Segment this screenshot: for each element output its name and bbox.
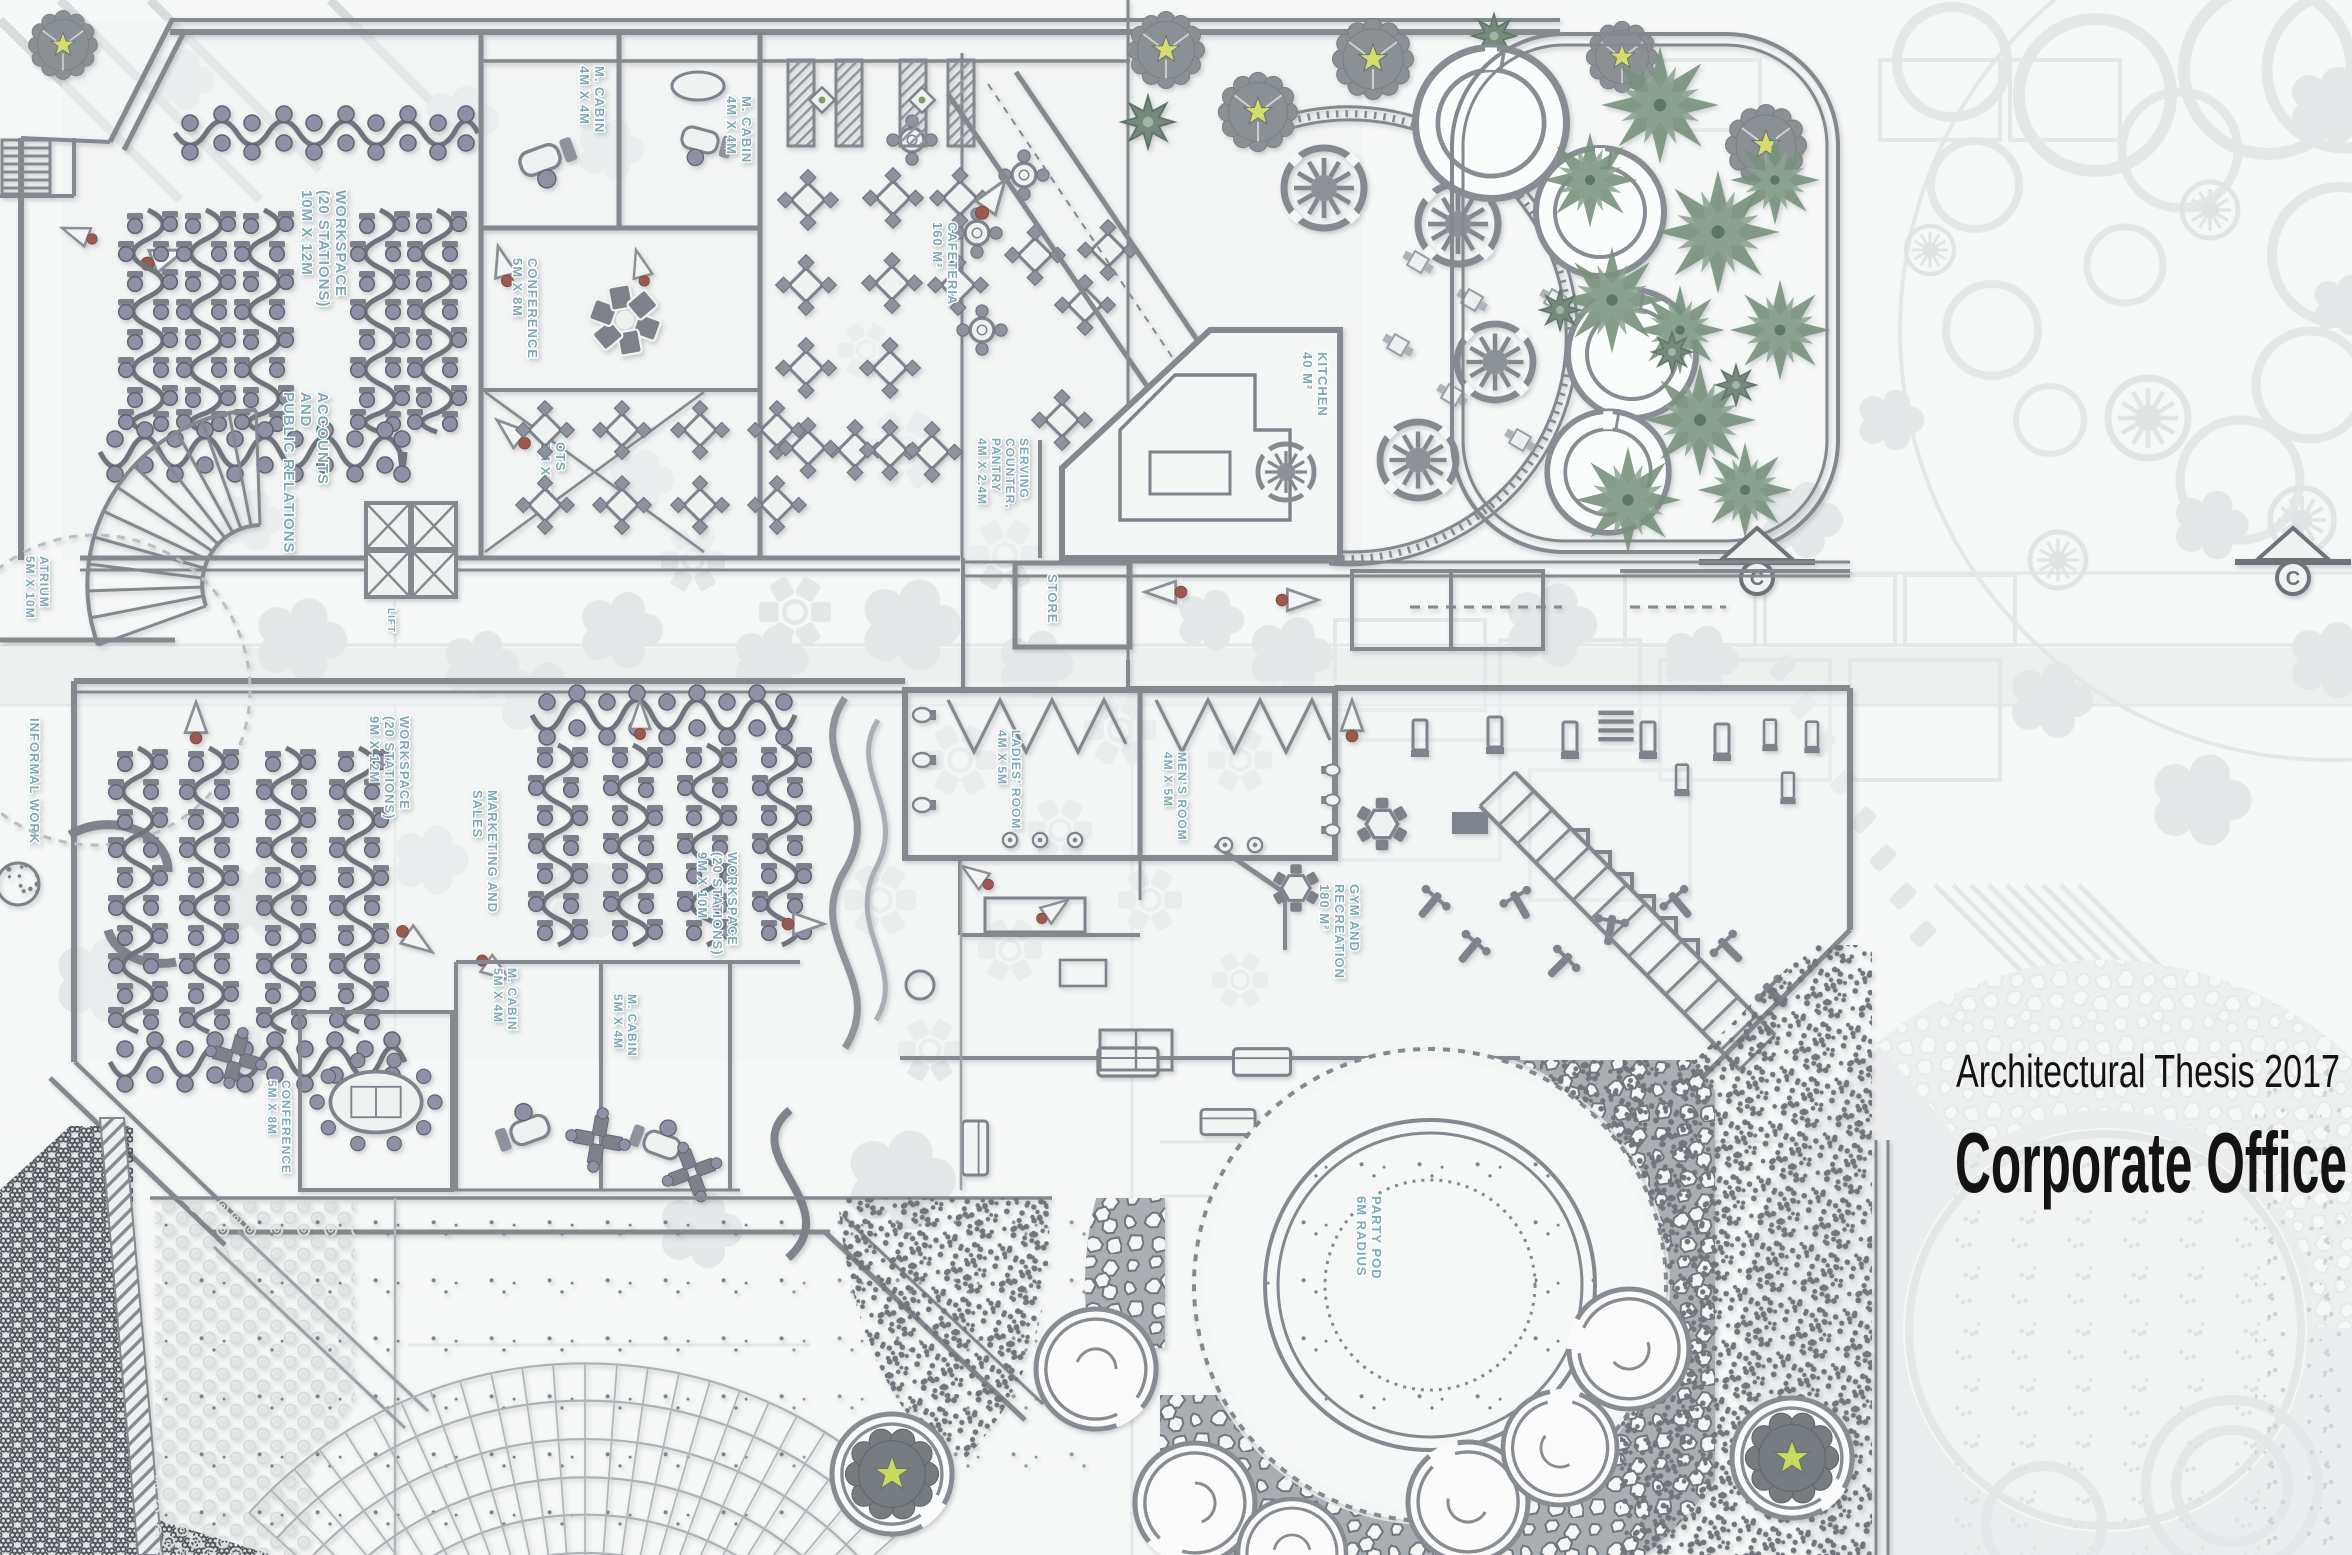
svg-text:M. CABIN5M X 4M: M. CABIN5M X 4M bbox=[491, 968, 519, 1031]
svg-text:PARTY POD6M RADIUS: PARTY POD6M RADIUS bbox=[1354, 1196, 1384, 1280]
svg-text:Architectural Thesis 2017: Architectural Thesis 2017 bbox=[1956, 1045, 2340, 1097]
svg-text:M. CABIN4M X 4M: M. CABIN4M X 4M bbox=[724, 96, 754, 163]
svg-text:Corporate Office: Corporate Office bbox=[1955, 1116, 2347, 1211]
svg-text:INFORMAL WORK: INFORMAL WORK bbox=[27, 718, 42, 844]
svg-text:LIFT: LIFT bbox=[385, 608, 396, 633]
svg-text:M. CABIN4M X 4M: M. CABIN4M X 4M bbox=[577, 66, 607, 133]
svg-text:M. CABIN5M X 4M: M. CABIN5M X 4M bbox=[611, 994, 639, 1057]
svg-text:STORE: STORE bbox=[1045, 574, 1060, 624]
